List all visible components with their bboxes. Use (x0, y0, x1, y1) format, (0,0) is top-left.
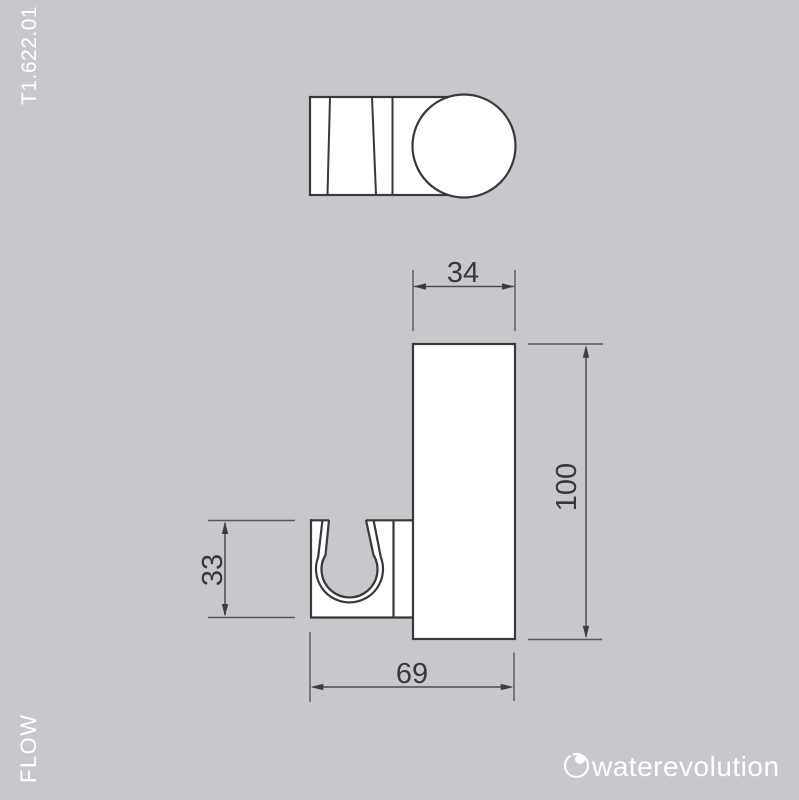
dimension-plate-width: 34 (413, 257, 515, 331)
side-view-drawing (310, 344, 515, 639)
top-view-wall-plate (413, 95, 516, 198)
top-view-drawing (310, 95, 516, 198)
arrowhead-down (222, 604, 228, 617)
dimension-total-depth: 69 (310, 632, 514, 702)
dimension-clip-height: 33 (197, 521, 295, 618)
dimension-value: 69 (396, 658, 428, 690)
arrowhead-up (222, 522, 228, 535)
dimension-value: 100 (551, 463, 583, 511)
arrowhead-left (414, 283, 427, 289)
technical-drawing: 34 100 33 69 (0, 0, 799, 800)
arrowhead-down (583, 626, 589, 639)
arrowhead-up (583, 345, 589, 358)
arrowhead-right (501, 684, 514, 690)
arrowhead-right (502, 283, 515, 289)
arrowhead-left (311, 684, 324, 690)
dimension-value: 33 (197, 554, 229, 586)
spec-sheet-page: T1.622.01 FLOW (0, 0, 799, 800)
dimension-value: 34 (447, 257, 479, 289)
dimension-plate-height: 100 (528, 344, 603, 640)
side-view-wall-plate (413, 344, 515, 639)
